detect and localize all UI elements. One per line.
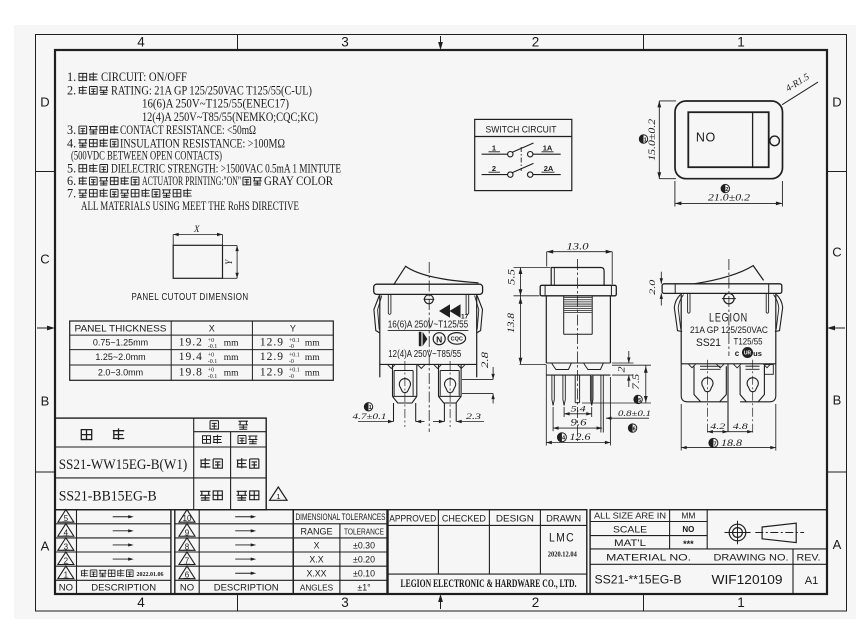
svg-text:19.8: 19.8	[179, 367, 203, 379]
svg-text:SS21: SS21	[696, 337, 721, 349]
svg-text:ANGLES: ANGLES	[300, 583, 334, 592]
svg-text:+0.1: +0.1	[289, 368, 300, 374]
svg-text:mm: mm	[305, 339, 320, 349]
svg-text:2022.01.06: 2022.01.06	[137, 571, 165, 578]
svg-text:X.XX: X.XX	[306, 569, 326, 579]
svg-text:12(4)A 250V~T85/55: 12(4)A 250V~T85/55	[388, 349, 461, 360]
svg-text:CHECKED: CHECKED	[442, 514, 486, 524]
svg-text:C: C	[40, 252, 49, 267]
svg-text:13.0: 13.0	[567, 242, 589, 252]
svg-text:SS21-WW15EG-B(W1): SS21-WW15EG-B(W1)	[59, 457, 188, 473]
svg-text:DRAWING NO.: DRAWING NO.	[714, 552, 789, 562]
svg-text:-0.1: -0.1	[208, 374, 218, 380]
svg-text:DESCRIPTION: DESCRIPTION	[214, 582, 279, 593]
svg-text:SWITCH CIRCUIT: SWITCH CIRCUIT	[486, 124, 557, 134]
svg-text:A1: A1	[805, 575, 818, 587]
svg-text:-0: -0	[289, 344, 294, 350]
svg-text:LEGION ELECTRONIC & HARDWARE C: LEGION ELECTRONIC & HARDWARE CO., LTD.	[401, 578, 577, 590]
svg-text:16(6)A 250V~T125/55(ENEC17): 16(6)A 250V~T125/55(ENEC17)	[142, 97, 289, 111]
svg-text:4: 4	[137, 595, 145, 610]
svg-text:16(6)A 250V~T125/55: 16(6)A 250V~T125/55	[388, 319, 469, 330]
svg-text:2.8: 2.8	[480, 351, 490, 368]
svg-text:9.6: 9.6	[571, 418, 588, 428]
svg-text:3: 3	[341, 35, 349, 50]
svg-text:ALL SIZE ARE IN: ALL SIZE ARE IN	[594, 512, 666, 521]
svg-text:SS21-**15EG-B: SS21-**15EG-B	[595, 575, 682, 587]
svg-text:12.9: 12.9	[260, 337, 284, 349]
svg-text:+0: +0	[208, 338, 214, 344]
svg-text:2.3: 2.3	[466, 411, 481, 421]
svg-text:7.: 7.	[67, 186, 76, 200]
svg-text:-0.1: -0.1	[208, 359, 218, 365]
svg-text:7.5: 7.5	[631, 373, 641, 390]
svg-text:5: 5	[638, 398, 641, 404]
svg-text:3: 3	[341, 595, 349, 610]
svg-text:T125/55: T125/55	[734, 337, 763, 347]
svg-text:2: 2	[725, 187, 728, 193]
svg-text:CQC: CQC	[451, 337, 463, 343]
svg-text:-0: -0	[289, 374, 294, 380]
svg-text:2: 2	[532, 595, 540, 610]
svg-text:2: 2	[532, 35, 540, 50]
svg-text:B: B	[833, 393, 842, 408]
svg-text:APPROVED: APPROVED	[389, 514, 436, 524]
svg-text:SCALE: SCALE	[613, 524, 647, 534]
svg-text:-0: -0	[289, 359, 294, 365]
svg-text:19.4: 19.4	[179, 351, 203, 363]
svg-text:PANEL THICKNESS: PANEL THICKNESS	[75, 323, 167, 333]
svg-text:DESCRIPTION: DESCRIPTION	[91, 582, 156, 593]
svg-text:±0.20: ±0.20	[353, 555, 375, 565]
svg-text:+0.1: +0.1	[289, 352, 300, 358]
svg-text:0.8±0.1: 0.8±0.1	[618, 408, 651, 418]
svg-text:4.8: 4.8	[733, 421, 749, 431]
svg-text:D: D	[832, 95, 841, 110]
svg-text:-0.1: -0.1	[208, 344, 218, 350]
svg-text:D: D	[40, 95, 49, 110]
svg-text:RATING: 21A GP 125/250VAC T125: RATING: 21A GP 125/250VAC T125/55(C-UL)	[111, 84, 312, 98]
svg-text:18.8: 18.8	[721, 439, 742, 449]
svg-text:mm: mm	[305, 353, 320, 363]
svg-text:(500VDC BETWEEN OPEN CONTACTS): (500VDC BETWEEN OPEN CONTACTS)	[71, 149, 222, 163]
svg-text:21A GP 125/250VAC: 21A GP 125/250VAC	[690, 325, 768, 336]
svg-text:12.9: 12.9	[260, 351, 284, 363]
svg-text:2A: 2A	[544, 164, 554, 173]
svg-text:1: 1	[644, 137, 647, 143]
svg-text:4: 4	[137, 35, 145, 50]
svg-text:RANGE: RANGE	[300, 526, 332, 536]
svg-text:NO: NO	[696, 131, 716, 145]
svg-text:LMC: LMC	[549, 531, 575, 545]
svg-text:A: A	[41, 539, 50, 554]
svg-text:X: X	[193, 224, 200, 234]
svg-text:WIF120109: WIF120109	[712, 573, 783, 587]
svg-text:+0: +0	[208, 352, 214, 358]
svg-text:X.X: X.X	[309, 555, 323, 565]
svg-text:ACTUATOR PRINTING:"ON": ACTUATOR PRINTING:"ON"	[142, 174, 241, 188]
svg-text:0.75~1.25mm: 0.75~1.25mm	[93, 338, 148, 348]
svg-text:NO: NO	[59, 582, 73, 593]
svg-text:DRAWN: DRAWN	[546, 514, 581, 524]
svg-text:+0.1: +0.1	[289, 338, 300, 344]
svg-text:±0.30: ±0.30	[353, 540, 375, 550]
svg-text:MM: MM	[681, 511, 695, 521]
svg-text:C: C	[832, 245, 841, 260]
svg-text:A: A	[833, 537, 842, 552]
svg-text:B: B	[41, 394, 50, 409]
svg-text:N: N	[436, 334, 442, 344]
svg-text:UR: UR	[744, 351, 752, 357]
svg-text:MATERIAL NO.: MATERIAL NO.	[606, 552, 691, 562]
svg-text:ALL MATERIALS USING MEET THE R: ALL MATERIALS USING MEET THE RoHS DIRECT…	[81, 199, 299, 213]
svg-text:21.0±0.2: 21.0±0.2	[708, 192, 751, 202]
svg-text:±1°: ±1°	[357, 582, 370, 592]
svg-text:+0: +0	[208, 368, 214, 374]
svg-text:DIMENSIONAL TOLERANCES: DIMENSIONAL TOLERANCES	[296, 512, 386, 522]
svg-text:7: 7	[713, 441, 716, 447]
svg-text:2.: 2.	[67, 84, 76, 98]
svg-text:2: 2	[617, 366, 627, 373]
svg-text:2020.12.04: 2020.12.04	[548, 551, 577, 559]
svg-text:SS21-BB15EG-B: SS21-BB15EG-B	[59, 489, 157, 505]
svg-text:MAT'L: MAT'L	[614, 538, 646, 548]
svg-text:1: 1	[492, 144, 496, 153]
svg-text:6: 6	[633, 427, 636, 433]
svg-text:1: 1	[276, 492, 280, 501]
svg-text:NO: NO	[180, 582, 194, 593]
svg-text:***: ***	[683, 539, 694, 549]
svg-text:DESIGN: DESIGN	[496, 514, 534, 524]
svg-text:4.2: 4.2	[710, 421, 726, 431]
svg-text:2: 2	[492, 164, 496, 173]
svg-text:CONTACT RESISTANCE: <50mΩ: CONTACT RESISTANCE: <50mΩ	[120, 123, 256, 137]
svg-text:5.5: 5.5	[507, 268, 517, 285]
svg-text:mm: mm	[224, 353, 239, 363]
svg-text:mm: mm	[305, 369, 320, 379]
svg-text:15.0±0.2: 15.0±0.2	[647, 118, 657, 161]
svg-text:3.: 3.	[67, 123, 76, 137]
svg-text:1.25~2.0mm: 1.25~2.0mm	[95, 352, 145, 362]
svg-text:LEGION: LEGION	[709, 313, 748, 325]
svg-text:5.4: 5.4	[571, 403, 587, 413]
svg-text:2.0: 2.0	[647, 279, 657, 295]
svg-text:X: X	[314, 540, 320, 550]
svg-text:4.7±0.1: 4.7±0.1	[353, 411, 387, 421]
svg-text:GRAY COLOR: GRAY COLOR	[264, 174, 334, 188]
svg-text:X: X	[209, 323, 215, 333]
svg-text:PANEL CUTOUT DIMENSION: PANEL CUTOUT DIMENSION	[132, 292, 249, 303]
svg-text:mm: mm	[224, 339, 239, 349]
svg-text:NO: NO	[682, 525, 694, 534]
svg-text:us: us	[753, 349, 762, 358]
svg-text:12.9: 12.9	[260, 367, 284, 379]
svg-text:c: c	[735, 349, 740, 358]
svg-text:±0.10: ±0.10	[353, 569, 375, 579]
svg-text:1.: 1.	[67, 70, 76, 84]
svg-text:13.8: 13.8	[506, 312, 516, 333]
svg-text:mm: mm	[224, 369, 239, 379]
svg-text:19.2: 19.2	[179, 337, 203, 349]
svg-text:1A: 1A	[543, 144, 553, 153]
svg-text:1: 1	[737, 35, 745, 50]
svg-text:1: 1	[737, 595, 745, 610]
svg-text:2.0~3.0mm: 2.0~3.0mm	[98, 368, 143, 378]
svg-text:Y: Y	[290, 323, 296, 333]
svg-text:TOLERANCE: TOLERANCE	[344, 527, 384, 536]
svg-text:12(4)A 250V~T85/55(NEMKO;CQC;K: 12(4)A 250V~T85/55(NEMKO;CQC;KC)	[142, 110, 318, 124]
svg-text:12.6: 12.6	[570, 433, 591, 443]
svg-text:CIRCUIT: ON/OFF: CIRCUIT: ON/OFF	[101, 70, 187, 84]
svg-text:REV.: REV.	[797, 552, 821, 562]
